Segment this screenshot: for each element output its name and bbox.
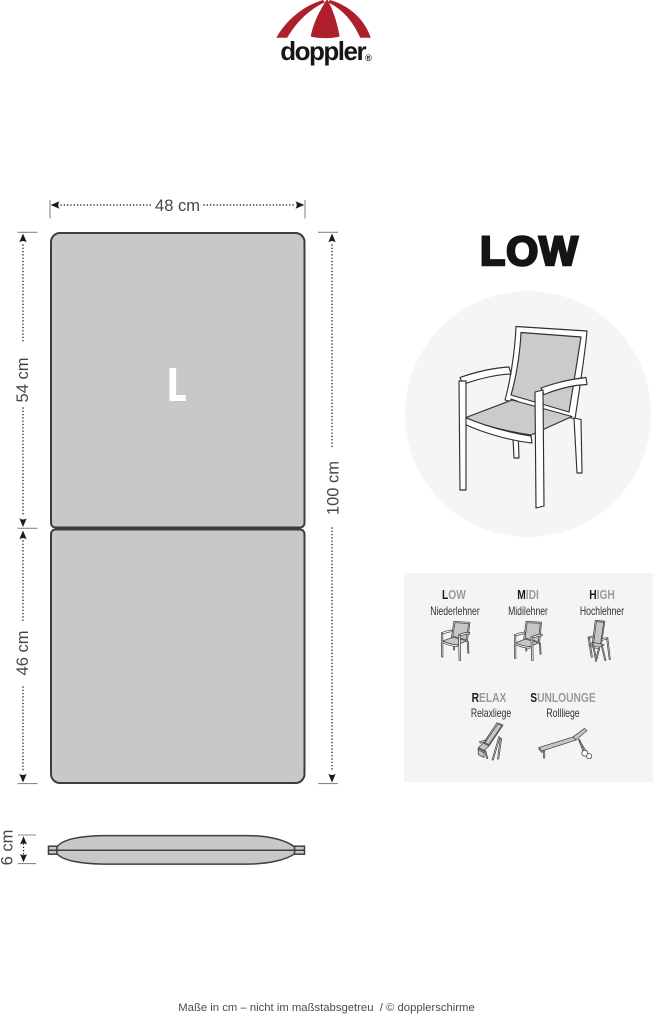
svg-text:54 cm: 54 cm xyxy=(14,358,32,403)
svg-text:100 cm: 100 cm xyxy=(325,461,343,515)
svg-text:46 cm: 46 cm xyxy=(14,631,32,676)
svg-text:6 cm: 6 cm xyxy=(0,830,17,866)
svg-text:48 cm: 48 cm xyxy=(155,197,200,215)
